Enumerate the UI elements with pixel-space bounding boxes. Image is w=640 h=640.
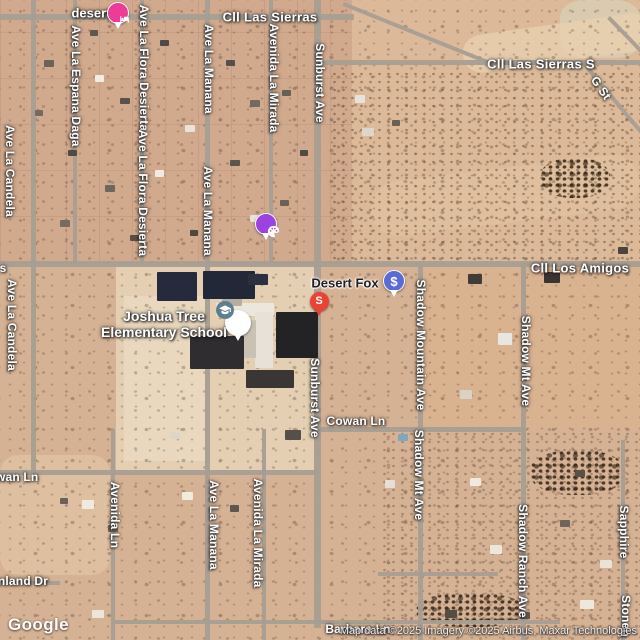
building-rooftop bbox=[60, 498, 68, 504]
building-rooftop bbox=[185, 125, 195, 132]
building-rooftop bbox=[520, 612, 530, 619]
terrain-rocky-corner bbox=[560, 0, 640, 58]
building-rooftop bbox=[157, 272, 197, 301]
building-rooftop bbox=[92, 610, 104, 618]
building-rooftop bbox=[68, 150, 77, 156]
terrain-wash bbox=[368, 152, 640, 239]
building-rooftop bbox=[160, 40, 169, 46]
marker-tail bbox=[262, 233, 270, 244]
building-rooftop bbox=[385, 480, 395, 488]
marker-glyph: S bbox=[315, 295, 322, 307]
road bbox=[621, 440, 625, 640]
road bbox=[0, 581, 60, 585]
building-rooftop bbox=[460, 390, 472, 399]
road bbox=[0, 14, 354, 20]
marker-tail bbox=[315, 309, 323, 320]
building-rooftop bbox=[498, 333, 512, 345]
road bbox=[343, 2, 495, 66]
road bbox=[262, 429, 266, 640]
building-rooftop bbox=[470, 478, 481, 486]
road bbox=[31, 0, 36, 473]
terrain-dense-scrub bbox=[330, 70, 640, 262]
marker-tail bbox=[390, 290, 398, 301]
road bbox=[73, 0, 77, 263]
terrain-desert bbox=[420, 263, 640, 430]
street-label: Ave La Candela bbox=[3, 125, 17, 217]
building-rooftop bbox=[468, 274, 482, 284]
building-rooftop bbox=[250, 100, 260, 107]
poi-label-desert-fox[interactable]: Desert Fox bbox=[311, 276, 378, 291]
building-rooftop bbox=[580, 600, 594, 609]
map-canvas[interactable]: Cll Las SierrasCll Las Sierras SG StCll … bbox=[0, 0, 640, 640]
building-rooftop bbox=[276, 312, 318, 358]
road bbox=[115, 620, 560, 624]
building-rooftop bbox=[618, 247, 628, 254]
road bbox=[418, 263, 423, 640]
road bbox=[378, 572, 498, 576]
building-rooftop bbox=[600, 560, 612, 568]
building-rooftop bbox=[398, 434, 408, 441]
building-rooftop bbox=[120, 98, 130, 104]
building-rooftop bbox=[230, 505, 239, 512]
building-rooftop bbox=[130, 235, 139, 241]
terrain-open-desert bbox=[352, 0, 640, 263]
poi-label-lodging-desert[interactable]: desert bbox=[71, 6, 110, 21]
road bbox=[111, 429, 115, 640]
building-rooftop bbox=[155, 170, 164, 177]
road bbox=[607, 16, 640, 53]
building-rooftop bbox=[490, 545, 502, 554]
building-rooftop bbox=[355, 95, 365, 103]
google-logo[interactable]: Google bbox=[8, 615, 69, 635]
building-rooftop bbox=[105, 185, 115, 192]
map-credits[interactable]: Map data ©2025 Imagery ©2025 Airbus, Max… bbox=[340, 625, 637, 637]
building-rooftop bbox=[560, 520, 570, 527]
building-rooftop bbox=[544, 272, 560, 283]
building-rooftop bbox=[230, 160, 240, 166]
building-rooftop bbox=[280, 200, 289, 206]
building-rooftop bbox=[108, 525, 118, 532]
building-rooftop bbox=[282, 90, 291, 96]
building-rooftop bbox=[248, 274, 268, 285]
street-label: Ave La Candela bbox=[5, 279, 19, 371]
road bbox=[582, 62, 640, 145]
building-rooftop bbox=[255, 312, 273, 368]
building-rooftop bbox=[90, 30, 98, 36]
building-rooftop bbox=[82, 500, 94, 509]
vegetation-cluster bbox=[540, 158, 610, 198]
building-rooftop bbox=[60, 220, 70, 227]
building-rooftop bbox=[300, 150, 308, 156]
marker-glyph: $ bbox=[390, 274, 397, 289]
poi-label-joshua-tree-elementary-school[interactable]: Joshua TreeElementary School bbox=[101, 308, 227, 340]
marker-tail bbox=[234, 334, 242, 345]
building-rooftop bbox=[170, 432, 180, 439]
building-rooftop bbox=[575, 470, 585, 477]
building-rooftop bbox=[95, 75, 104, 82]
building-rooftop bbox=[226, 60, 235, 66]
terrain-residential-grid bbox=[0, 0, 352, 263]
building-rooftop bbox=[445, 610, 457, 618]
road bbox=[140, 0, 144, 263]
graduation-cap-icon bbox=[216, 301, 234, 319]
building-rooftop bbox=[44, 60, 54, 67]
building-rooftop bbox=[392, 120, 400, 126]
building-rooftop bbox=[246, 370, 294, 388]
road bbox=[0, 470, 318, 475]
building-rooftop bbox=[182, 492, 193, 500]
marker-tail bbox=[114, 22, 122, 33]
building-rooftop bbox=[35, 110, 43, 116]
building-rooftop bbox=[362, 128, 374, 136]
building-rooftop bbox=[190, 230, 198, 236]
street-label: Cowan Ln bbox=[327, 414, 386, 428]
road bbox=[521, 263, 526, 640]
building-rooftop bbox=[285, 430, 301, 440]
